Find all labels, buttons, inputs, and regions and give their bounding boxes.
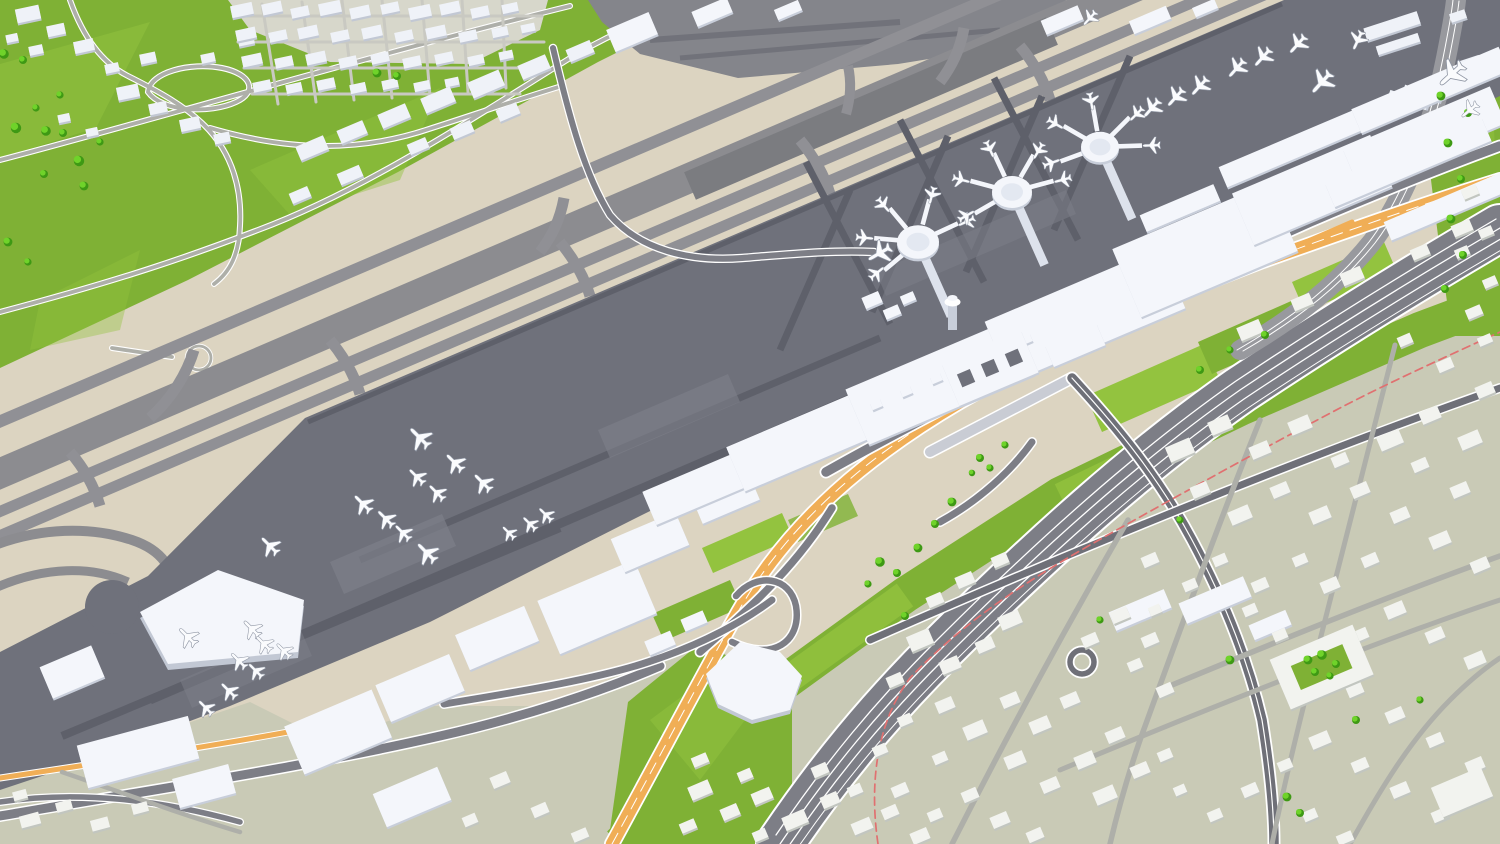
tree — [74, 156, 84, 166]
tree — [864, 580, 871, 587]
tree — [1283, 793, 1292, 802]
tree — [1447, 215, 1456, 224]
tree — [1261, 331, 1269, 339]
scene-canvas — [0, 0, 1500, 844]
tree — [80, 182, 89, 191]
tree — [4, 238, 13, 247]
tree — [1296, 809, 1304, 817]
tree — [1457, 175, 1465, 183]
tree — [1226, 346, 1233, 353]
tree — [976, 454, 984, 462]
tree — [393, 72, 401, 80]
tree — [1311, 668, 1319, 676]
tree — [96, 138, 103, 145]
tree — [1001, 441, 1008, 448]
tree — [1352, 716, 1360, 724]
hangar-pad — [85, 580, 139, 634]
tree — [969, 470, 975, 476]
tree — [1437, 92, 1446, 101]
airport-3d-map-render — [0, 0, 1500, 844]
tree — [986, 464, 993, 471]
tree — [59, 129, 67, 137]
jet-bridge — [1116, 143, 1142, 149]
tree — [901, 612, 909, 620]
tree — [1416, 696, 1423, 703]
tree — [56, 91, 63, 98]
tree — [1441, 285, 1449, 293]
tree — [948, 498, 957, 507]
tree — [373, 69, 382, 78]
tree — [1304, 656, 1313, 665]
tree — [19, 56, 27, 64]
tree — [914, 544, 923, 553]
tree — [40, 170, 48, 178]
tree — [1226, 656, 1235, 665]
tree — [1459, 251, 1467, 259]
tree — [931, 520, 939, 528]
tree — [11, 123, 21, 133]
tree — [1096, 616, 1103, 623]
tree — [875, 557, 885, 567]
tree — [32, 104, 39, 111]
tree — [893, 569, 901, 577]
tree — [1196, 366, 1204, 374]
tree — [24, 258, 31, 265]
tree — [1332, 660, 1340, 668]
tree — [41, 126, 51, 136]
tree — [1176, 516, 1183, 523]
tree — [1317, 650, 1327, 660]
tree — [1444, 139, 1453, 148]
tree — [1326, 672, 1333, 679]
